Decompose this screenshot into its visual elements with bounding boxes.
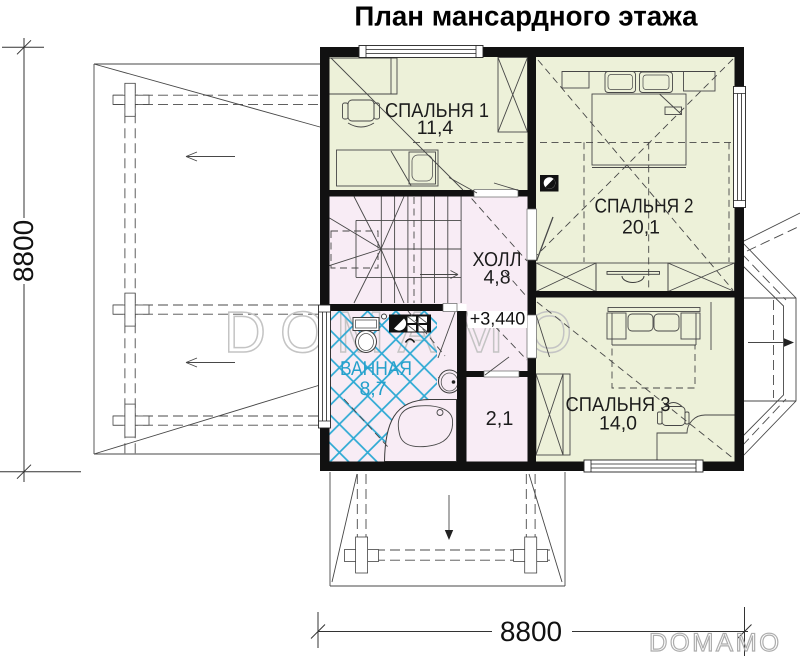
svg-text:8,7: 8,7 (359, 378, 386, 400)
svg-text:4,8: 4,8 (483, 267, 510, 289)
svg-text:D: D (224, 300, 266, 365)
svg-text:+3,440: +3,440 (470, 309, 526, 329)
svg-text:20,1: 20,1 (622, 217, 660, 239)
svg-text:8800: 8800 (8, 220, 39, 282)
svg-text:11,4: 11,4 (417, 117, 454, 139)
svg-text:2,1: 2,1 (486, 408, 514, 430)
svg-text:План мансардного этажа: План мансардного этажа (354, 1, 698, 32)
svg-text:8800: 8800 (500, 616, 562, 647)
svg-text:DOMAMO: DOMAMO (649, 629, 782, 656)
svg-text:14,0: 14,0 (599, 413, 637, 435)
svg-text:ВАННАЯ: ВАННАЯ (340, 358, 412, 380)
svg-text:СПАЛЬНЯ 2: СПАЛЬНЯ 2 (595, 196, 694, 218)
